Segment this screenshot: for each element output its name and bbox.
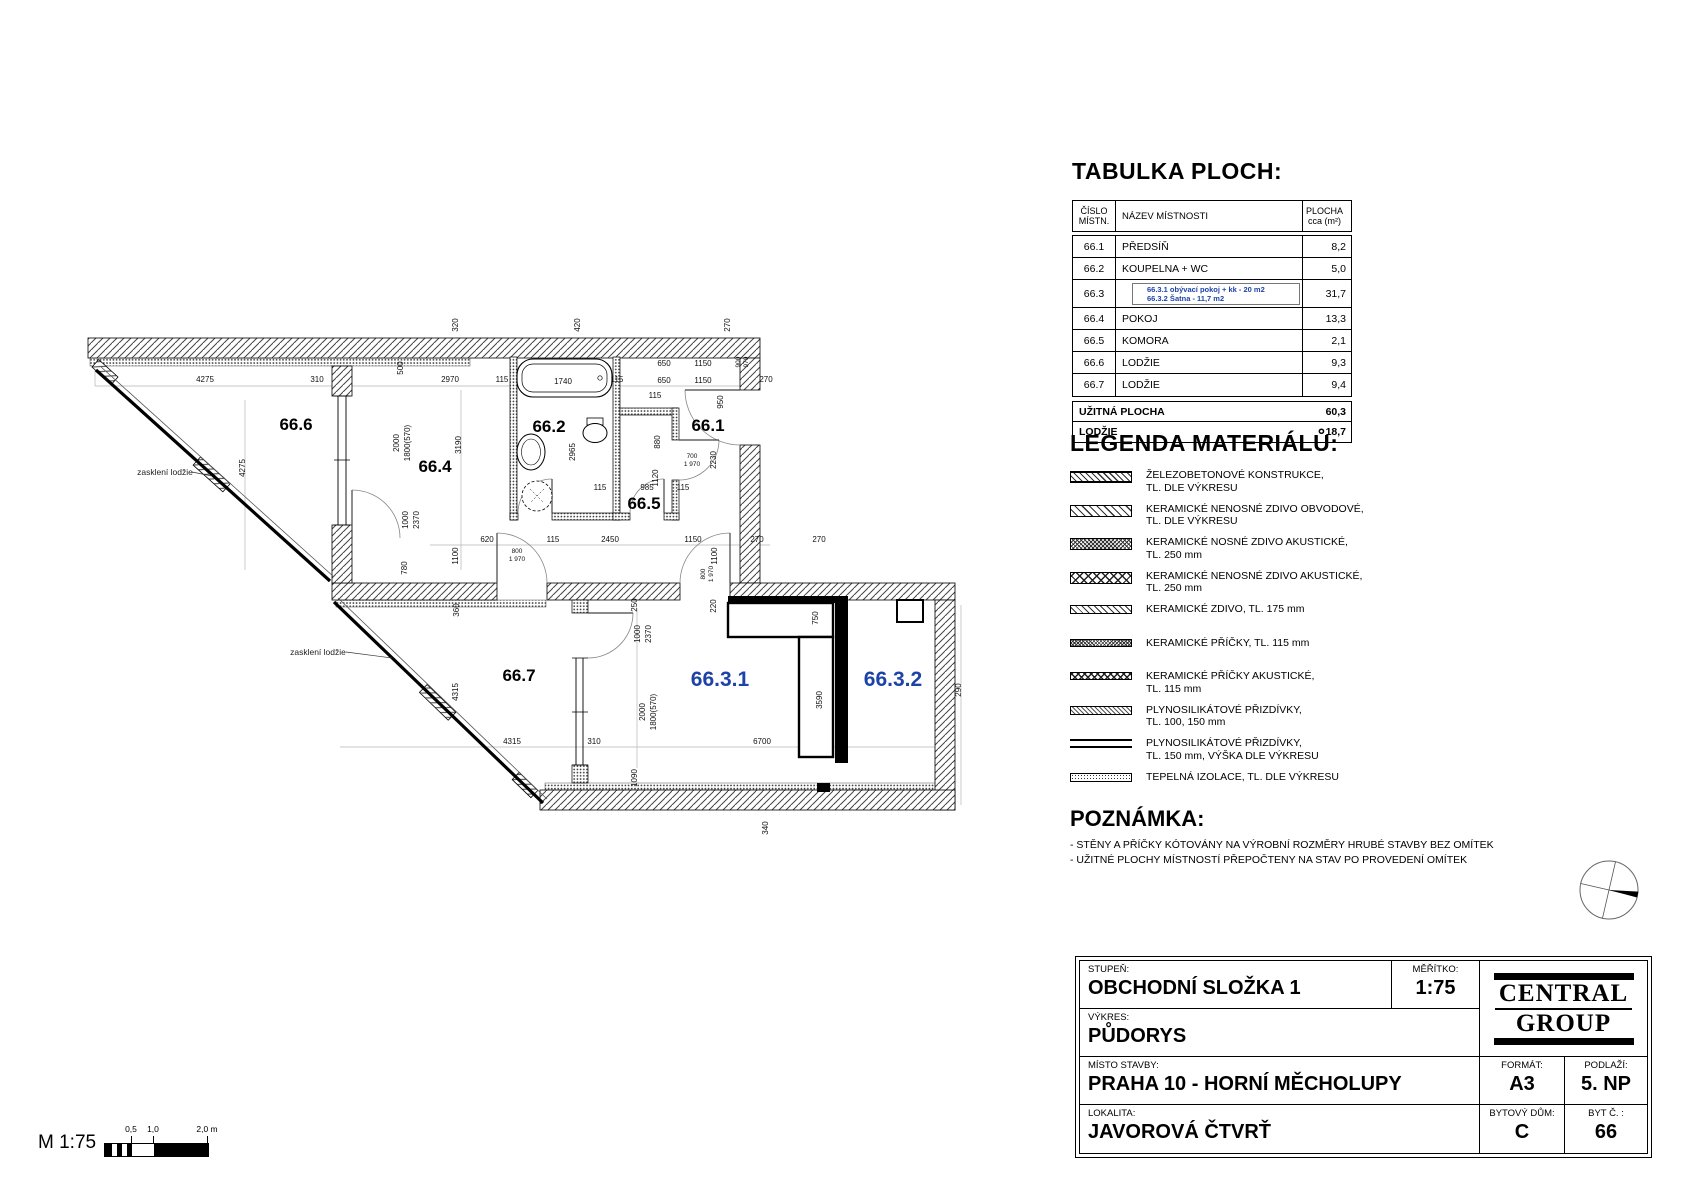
logo-bar-top	[1494, 973, 1634, 980]
scale-value: 1:75	[1392, 977, 1479, 1000]
areas-table-rows: 66.1PŘEDSÍŇ8,266.2KOUPELNA + WC5,066.366…	[1072, 235, 1352, 397]
locality-value: JAVOROVÁ ČTVRŤ	[1088, 1121, 1479, 1144]
materials-legend: LEGENDA MATERIÁLŮ: ŽELEZOBETONOVÉ KONSTR…	[1070, 430, 1490, 804]
legend-swatch-sw-xx	[1070, 572, 1132, 584]
legend-item: PLYNOSILIKÁTOVÉ PŘIZDÍVKY, TL. 100, 150 …	[1070, 704, 1490, 738]
dimension-label: 2000	[392, 434, 401, 452]
dimension-label: 1 970	[684, 461, 701, 468]
site-value: PRAHA 10 - HORNÍ MĚCHOLUPY	[1088, 1073, 1479, 1096]
title-block-locality-cell: LOKALITA: JAVOROVÁ ČTVRŤ	[1080, 1105, 1480, 1153]
format-value: A3	[1480, 1073, 1564, 1096]
legend-item: TEPELNÁ IZOLACE, TL. DLE VÝKRESU	[1070, 771, 1490, 805]
dimension-label: 1800(570)	[403, 424, 412, 461]
dimension-label: 970	[743, 356, 750, 367]
dimension-label: 270	[723, 318, 732, 332]
dimension-label: 115	[547, 535, 560, 544]
legend-item: KERAMICKÉ NENOSNÉ ZDIVO OBVODOVÉ, TL. DL…	[1070, 503, 1490, 537]
dimension-label: 500	[396, 361, 405, 375]
annotations-layer: zasklení lodžiezasklení lodžie	[137, 467, 346, 657]
legend-swatch-sw-mesh-thin	[1070, 639, 1132, 647]
legend-item: KERAMICKÉ PŘÍČKY AKUSTICKÉ, TL. 115 mm	[1070, 670, 1490, 704]
scale-tick-label: 1,0	[140, 1124, 166, 1134]
table-row: 66.5KOMORA2,1	[1073, 330, 1351, 352]
title-block-building-cell: BYTOVÝ DŮM: C	[1480, 1105, 1565, 1153]
title-block-scale-cell: MĚŘÍTKO: 1:75	[1392, 961, 1480, 1009]
dimension-label: 115	[611, 375, 624, 384]
stage-value: OBCHODNÍ SLOŽKA 1	[1088, 977, 1391, 1000]
dimension-label: 220	[709, 599, 718, 613]
dimension-label: 2450	[601, 535, 619, 544]
legend-swatch-sw-dots	[1070, 773, 1132, 782]
scale-bar: M 1:75 0,51,02,0 m	[38, 1118, 258, 1163]
room-label-66.7: 66.7	[502, 666, 535, 685]
scale-bar-graphic	[104, 1143, 209, 1157]
dimension-label: 310	[587, 737, 601, 746]
dimension-label: 2370	[412, 511, 421, 529]
central-group-logo: CENTRAL GROUP	[1480, 961, 1647, 1057]
table-row: 66.6LODŽIE9,3	[1073, 352, 1351, 374]
dimension-label: 950	[716, 395, 725, 409]
loggia-glazing-annotation: zasklení lodžie	[137, 467, 193, 477]
dimension-label: 2965	[568, 443, 577, 461]
dimension-label: 1100	[710, 547, 719, 565]
dimension-label: 4275	[196, 375, 214, 384]
dimension-label: 750	[811, 611, 820, 625]
dimension-label: 1740	[554, 377, 572, 386]
dimension-label: 310	[310, 375, 324, 384]
legend-swatch-sw-fine	[1070, 706, 1132, 715]
drawing-value: PŮDORYS	[1088, 1025, 1479, 1048]
dimension-label: 115	[677, 483, 690, 492]
dimension-label: 900	[735, 356, 742, 367]
areas-table-title: TABULKA PLOCH:	[1072, 158, 1282, 185]
legend-swatch-sw-mesh	[1070, 538, 1132, 550]
legend-item: KERAMICKÉ NOSNÉ ZDIVO AKUSTICKÉ, TL. 250…	[1070, 536, 1490, 570]
dimension-label: 420	[573, 318, 582, 332]
room-label-66.2: 66.2	[532, 417, 565, 436]
dimension-label: 4275	[238, 459, 247, 477]
title-block: STUPEŇ: OBCHODNÍ SLOŽKA 1 MĚŘÍTKO: 1:75 …	[1075, 956, 1652, 1158]
table-row: 66.1PŘEDSÍŇ8,2	[1073, 236, 1351, 258]
legend-item: PLYNOSILIKÁTOVÉ PŘIZDÍVKY, TL. 150 mm, V…	[1070, 737, 1490, 771]
areas-table: ČÍSLOMÍSTN. NÁZEV MÍSTNOSTI PLOCHAcca (m…	[1072, 200, 1352, 443]
dimension-label: 3190	[454, 436, 463, 454]
legend-item: KERAMICKÉ ZDIVO, TL. 175 mm	[1070, 603, 1490, 637]
dimension-label: 270	[759, 375, 773, 384]
title-block-format-cell: FORMÁT: A3	[1480, 1057, 1565, 1105]
room-label-66.6: 66.6	[279, 415, 312, 434]
legend-swatch-sw-rc	[1070, 471, 1132, 483]
note-line: - UŽITNÉ PLOCHY MÍSTNOSTÍ PŘEPOČTENY NA …	[1070, 853, 1670, 868]
legend-swatch-sw-hatch-thin	[1070, 605, 1132, 614]
dimension-label: 4315	[503, 737, 521, 746]
dimension-label: 1100	[451, 547, 460, 565]
note-title: POZNÁMKA:	[1070, 806, 1670, 832]
dimension-label: 1 970	[708, 565, 715, 582]
table-row: 66.4POKOJ13,3	[1073, 308, 1351, 330]
dimension-label: 1000	[633, 625, 642, 643]
table-total-row: UŽITNÁ PLOCHA60,3	[1073, 402, 1351, 422]
note-line: - STĚNY A PŘÍČKY KÓTOVÁNY NA VÝROBNÍ ROZ…	[1070, 838, 1670, 853]
dimension-label: 1150	[684, 535, 702, 544]
title-block-drawing-cell: VÝKRES: PŮDORYS	[1080, 1009, 1480, 1057]
dimension-label: 985	[640, 483, 654, 492]
dimension-label: 1 970	[509, 556, 526, 563]
table-row: 66.366.3.1 obývací pokoj + kk - 20 m266.…	[1073, 280, 1351, 308]
room-label-66.3.2: 66.3.2	[864, 668, 922, 691]
legend-item: KERAMICKÉ NENOSNÉ ZDIVO AKUSTICKÉ, TL. 2…	[1070, 570, 1490, 604]
dimension-label: 2000	[638, 703, 647, 721]
dimension-label: 320	[451, 318, 460, 332]
title-block-site-cell: MÍSTO STAVBY: PRAHA 10 - HORNÍ MĚCHOLUPY	[1080, 1057, 1480, 1105]
dimension-label: 3590	[815, 691, 824, 709]
title-block-stage-cell: STUPEŇ: OBCHODNÍ SLOŽKA 1	[1080, 961, 1392, 1009]
dimension-label: 360	[452, 603, 461, 617]
dimension-label: 290	[954, 683, 963, 697]
dimension-label: 340	[761, 821, 770, 835]
note-block: POZNÁMKA: - STĚNY A PŘÍČKY KÓTOVÁNY NA V…	[1070, 806, 1670, 868]
areas-table-header: ČÍSLOMÍSTN. NÁZEV MÍSTNOSTI PLOCHAcca (m…	[1072, 200, 1352, 232]
dimension-label: 2970	[441, 375, 459, 384]
floor-plan: 66.666.466.266.166.566.766.3.166.3.2 427…	[0, 0, 1000, 1200]
building-value: C	[1480, 1121, 1564, 1144]
title-block-floor-cell: PODLAŽÍ: 5. NP	[1565, 1057, 1647, 1105]
dimension-label: 880	[653, 435, 662, 449]
legend-swatch-sw-xx-thin	[1070, 672, 1132, 680]
legend-item: ŽELEZOBETONOVÉ KONSTRUKCE, TL. DLE VÝKRE…	[1070, 469, 1490, 503]
dimension-label: 2230	[709, 451, 718, 469]
room-label-66.3.1: 66.3.1	[691, 668, 750, 691]
legend-item: KERAMICKÉ PŘÍČKY, TL. 115 mm	[1070, 637, 1490, 671]
dimension-label: 700	[687, 453, 698, 460]
dimension-label: 800	[700, 568, 707, 579]
dimension-label: 115	[594, 483, 607, 492]
room-label-66.4: 66.4	[418, 457, 452, 476]
scale-tick-label: 2,0 m	[194, 1124, 220, 1134]
dimension-label: 1000	[401, 511, 410, 529]
dimension-label: 6700	[753, 737, 771, 746]
apartment-value: 66	[1565, 1121, 1647, 1144]
dimension-label: 780	[400, 561, 409, 575]
logo-bar-bottom	[1494, 1038, 1634, 1045]
dimension-label: 1090	[630, 769, 639, 787]
dimension-label: 620	[480, 535, 494, 544]
dimension-label: 250	[630, 598, 639, 612]
legend-swatch-sw-hatch	[1070, 505, 1132, 517]
title-block-apartment-cell: BYT Č. : 66	[1565, 1105, 1647, 1153]
room-label-66.1: 66.1	[691, 416, 724, 435]
room-label-66.5: 66.5	[627, 494, 660, 513]
page: { "accent_blue": "#1e43a8", "plan": { "r…	[0, 0, 1698, 1200]
dimension-label: 2370	[644, 625, 653, 643]
acoustic-walls-layer	[728, 596, 923, 792]
dimension-label: 1800(570)	[649, 693, 658, 730]
dimension-label: 650	[657, 376, 671, 385]
dimension-label: 115	[649, 391, 662, 400]
dimension-label: 270	[812, 535, 826, 544]
loggia-glazing-annotation: zasklení lodžie	[290, 647, 346, 657]
table-row: 66.7LODŽIE9,4	[1073, 374, 1351, 396]
scale-text: M 1:75	[38, 1132, 96, 1154]
table-row: 66.2KOUPELNA + WC5,0	[1073, 258, 1351, 280]
dimension-label: 650	[657, 359, 671, 368]
dimension-label: 115	[496, 375, 509, 384]
legend-swatch-sw-lines	[1070, 739, 1132, 748]
dimension-label: 800	[512, 548, 523, 555]
floor-value: 5. NP	[1565, 1073, 1647, 1096]
legend-items: ŽELEZOBETONOVÉ KONSTRUKCE, TL. DLE VÝKRE…	[1070, 469, 1490, 804]
dimension-label: 4315	[451, 683, 460, 701]
dimension-label: 1150	[694, 359, 712, 368]
dimension-label: 1150	[694, 376, 712, 385]
dimension-label: 270	[750, 535, 764, 544]
legend-title: LEGENDA MATERIÁLŮ:	[1070, 430, 1490, 457]
